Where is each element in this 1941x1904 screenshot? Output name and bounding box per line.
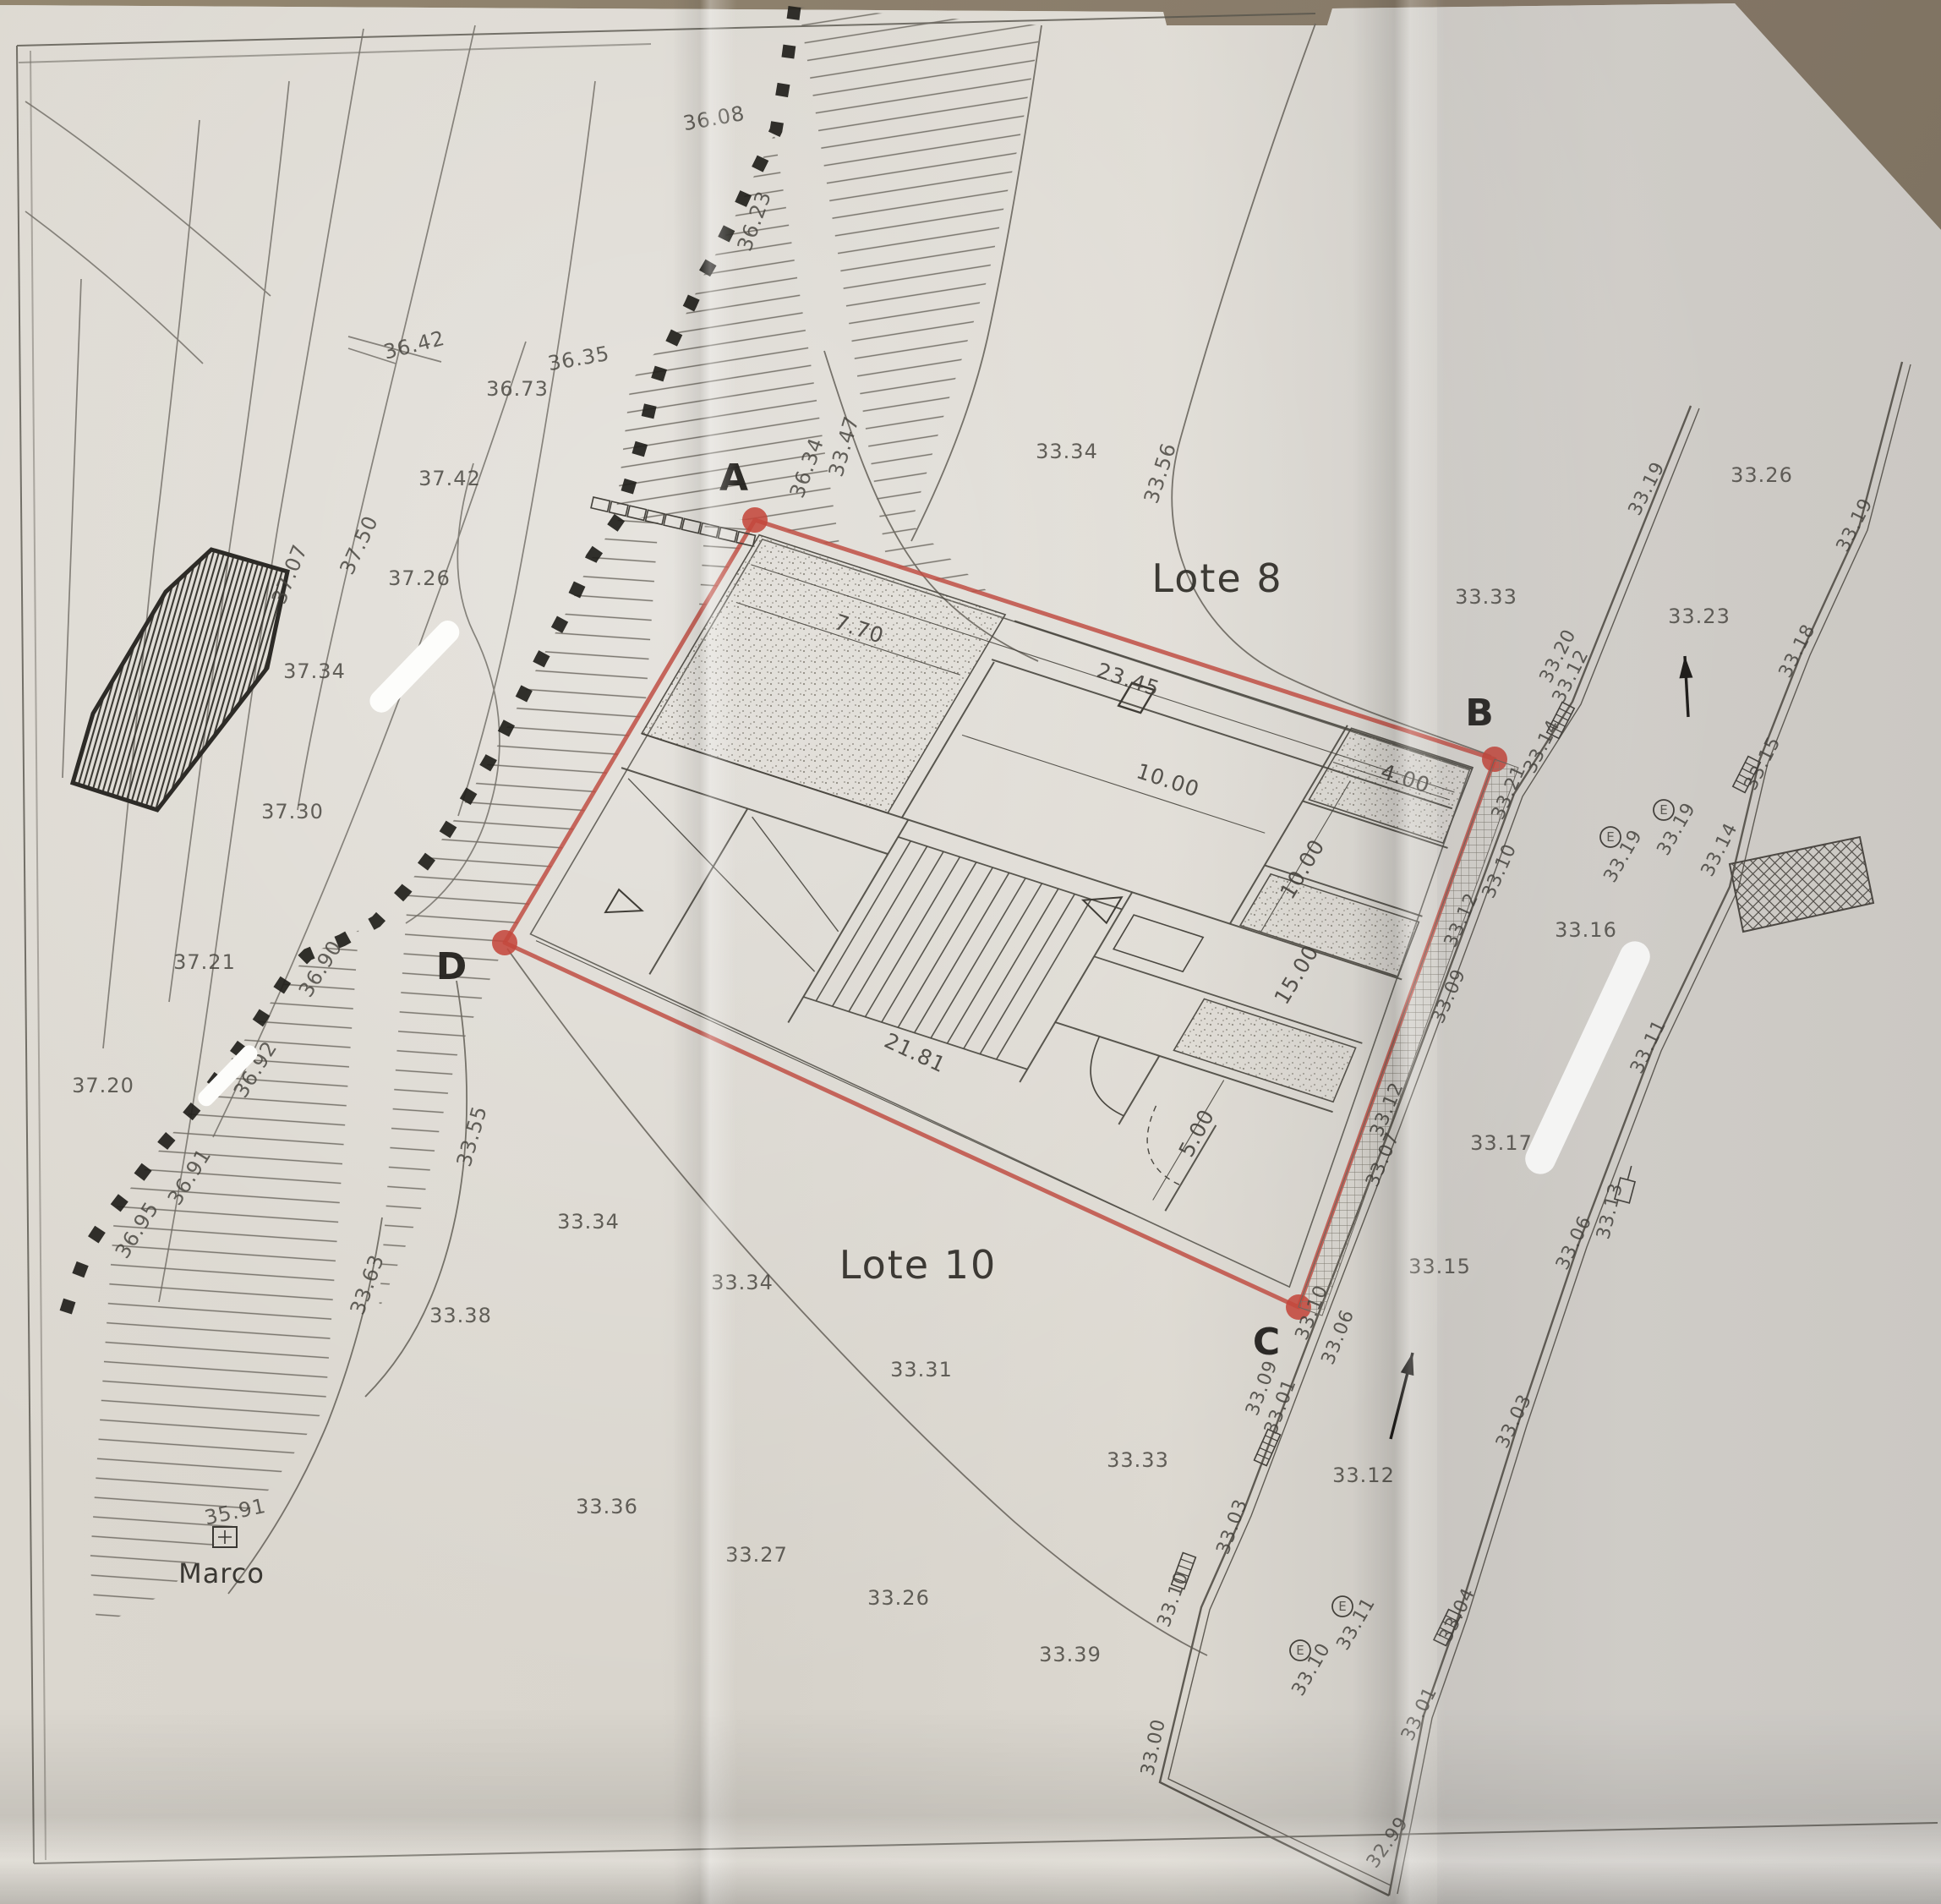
elevation-label: 36.35 bbox=[546, 342, 611, 375]
elevation-label: 33.31 bbox=[890, 1358, 953, 1381]
lot-label-lote10: Lote 10 bbox=[839, 1242, 997, 1288]
building-wall bbox=[1020, 892, 1132, 1082]
dimension-label: 21.81 bbox=[881, 1028, 950, 1078]
north-arrow-icon bbox=[1401, 1353, 1414, 1376]
building-wall bbox=[628, 779, 814, 971]
building-wall bbox=[649, 808, 747, 974]
elevation-label: 33.34 bbox=[1036, 440, 1098, 463]
elevation-label: 33.34 bbox=[557, 1210, 620, 1234]
power-pole-icon: E bbox=[1338, 1599, 1346, 1614]
stair-tread bbox=[980, 894, 1074, 1053]
small-room bbox=[1113, 915, 1203, 971]
existing-building-hatched bbox=[73, 550, 287, 810]
photographed-site-plan: EEEE ABCD33.1933.1933.1033.1136.0836.423… bbox=[0, 0, 1941, 1904]
elevation-label: 33.16 bbox=[1555, 918, 1617, 942]
road-elevation-label: 33.01 bbox=[1397, 1683, 1441, 1744]
corner-marker bbox=[742, 507, 768, 533]
road-elevation-label: 33.00 bbox=[1137, 1717, 1170, 1778]
elevation-label: 36.08 bbox=[681, 101, 746, 135]
road-elevation-label: 33.18 bbox=[1775, 621, 1820, 681]
elevation-label: 37.26 bbox=[388, 566, 451, 590]
road-elevation-label: 33.06 bbox=[1552, 1212, 1596, 1273]
building-wall bbox=[1014, 621, 1472, 769]
power-pole-icon: E bbox=[1296, 1643, 1304, 1658]
building-wall bbox=[642, 734, 1402, 980]
north-arrow-icon bbox=[1679, 656, 1692, 678]
site-plan-drawing: EEEE ABCD33.1933.1933.1033.1136.0836.423… bbox=[0, 0, 1941, 1904]
corner-label: B bbox=[1465, 692, 1494, 735]
benchmark-label: Marco bbox=[178, 1557, 265, 1589]
building-wall bbox=[788, 820, 908, 1023]
corner-label: D bbox=[436, 945, 467, 988]
elevation-label: 36.42 bbox=[381, 326, 447, 364]
elevation-label: 37.21 bbox=[173, 950, 236, 974]
elevation-label: 33.36 bbox=[576, 1495, 638, 1518]
elevation-label: 33.15 bbox=[1408, 1255, 1471, 1278]
stair-tread bbox=[898, 867, 992, 1027]
corner-label: A bbox=[719, 457, 748, 500]
dimension-label: 23.45 bbox=[1094, 658, 1163, 701]
door-swing-arc bbox=[1091, 1037, 1124, 1116]
dimension-label: 10.00 bbox=[1134, 758, 1203, 802]
stair-tread bbox=[882, 862, 976, 1022]
elevation-label: 37.50 bbox=[335, 512, 383, 578]
road-elevation-label: 33.10 bbox=[1154, 1569, 1194, 1630]
elevation-label: 37.42 bbox=[418, 467, 481, 490]
building-wall bbox=[536, 941, 1130, 1213]
stair-tread bbox=[833, 846, 927, 1006]
road-elevation-label: 33.11 bbox=[1627, 1016, 1670, 1077]
building-wall bbox=[898, 837, 1122, 910]
elevation-label: 37.30 bbox=[261, 800, 324, 823]
elevation-label: 33.17 bbox=[1470, 1131, 1533, 1155]
building-wall bbox=[962, 735, 1265, 833]
building-wall bbox=[1118, 1056, 1159, 1124]
power-pole-icon: E bbox=[1606, 829, 1614, 845]
elevation-label: 37.34 bbox=[283, 659, 346, 683]
elevation-label: 33.26 bbox=[867, 1586, 930, 1610]
power-pole-icon: E bbox=[1659, 802, 1667, 818]
stair-tread bbox=[997, 900, 1091, 1059]
elevation-label: 33.27 bbox=[725, 1543, 788, 1567]
road-elevation-label: 33.06 bbox=[1318, 1306, 1359, 1367]
corner-label: C bbox=[1253, 1321, 1280, 1364]
stair-tread bbox=[865, 857, 960, 1017]
dimension-label: 15.00 bbox=[1270, 940, 1324, 1009]
stair-tread bbox=[947, 884, 1042, 1043]
elevation-label: 33.23 bbox=[1668, 605, 1730, 628]
road-elevation-label: 33.04 bbox=[1435, 1584, 1479, 1645]
elevation-label: 33.33 bbox=[1107, 1448, 1169, 1472]
road-tick-symbol bbox=[1181, 1559, 1194, 1563]
level-triangle-symbol bbox=[605, 889, 642, 912]
stair-tread bbox=[931, 878, 1025, 1038]
stair-tread bbox=[915, 873, 1009, 1032]
road-elevation-label: 33.19 bbox=[1833, 495, 1878, 555]
elevation-label: 33.56 bbox=[1140, 440, 1181, 506]
elevation-label: 36.73 bbox=[486, 377, 549, 401]
dimension-label: 5.00 bbox=[1174, 1105, 1220, 1161]
elevation-label: 33.12 bbox=[1332, 1464, 1395, 1487]
corner-marker bbox=[492, 930, 517, 955]
pole-elevation-label: 33.10 bbox=[1288, 1639, 1336, 1699]
slope-hachure-bands bbox=[62, 7, 1042, 1628]
stippled-slab bbox=[1240, 874, 1419, 977]
road-elevation-label: 33.19 bbox=[1625, 458, 1670, 519]
elevation-label: 33.55 bbox=[452, 1103, 492, 1170]
elevation-label: 33.33 bbox=[1455, 585, 1517, 609]
elevation-label: 37.20 bbox=[72, 1074, 134, 1097]
stippled-slab bbox=[1174, 999, 1356, 1102]
elevation-label: 33.39 bbox=[1039, 1643, 1102, 1666]
elevation-label: 33.38 bbox=[429, 1304, 492, 1327]
lot-label-lote8: Lote 8 bbox=[1151, 555, 1282, 601]
stair-tread bbox=[849, 851, 943, 1011]
elevation-label: 33.26 bbox=[1730, 463, 1793, 487]
road-elevation-label: 33.03 bbox=[1492, 1391, 1536, 1452]
elevation-label: 33.34 bbox=[711, 1271, 774, 1294]
building-wall bbox=[992, 659, 1452, 808]
road-elevation-label: 32.99 bbox=[1363, 1813, 1413, 1872]
stair-tread bbox=[964, 889, 1058, 1048]
road-elevation-label: 33.14 bbox=[1520, 716, 1565, 777]
road-tick-symbol bbox=[1178, 1566, 1191, 1570]
crosshatched-structure bbox=[1730, 837, 1873, 932]
sidewalk-grid-band bbox=[1299, 759, 1518, 1316]
retaining-wall-boxes bbox=[591, 497, 610, 512]
